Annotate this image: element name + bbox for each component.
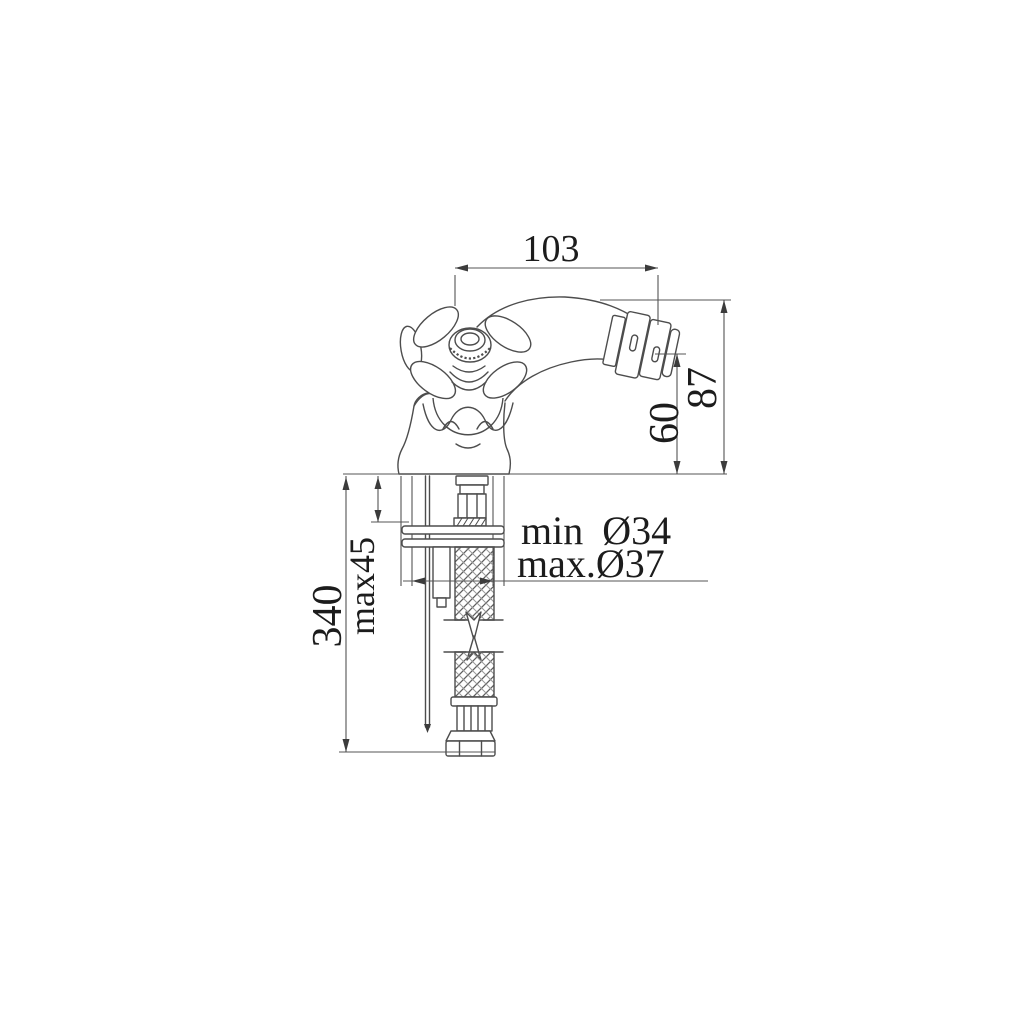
tailpiece-neck: [460, 485, 484, 494]
dim-max45-label: max45: [342, 537, 382, 635]
hose-upper-section: [455, 547, 494, 620]
dim-60-arrow-bottom: [674, 461, 681, 474]
mounting-plate-upper: [402, 526, 504, 534]
tailpiece-hex: [458, 494, 486, 518]
supply-hose: [444, 547, 503, 756]
handle-collar-arc-top: [453, 366, 485, 372]
hose-nut-chamfer: [446, 731, 495, 741]
dim-max45-arrow-top: [375, 477, 382, 489]
dimension-max45: max45: [342, 476, 409, 635]
dim-103-arrow-right: [645, 265, 658, 272]
handle-collar-arc-low: [452, 382, 486, 390]
dim-87-arrow-bottom: [721, 461, 728, 474]
tailpiece-collar: [456, 476, 488, 485]
fixing-stud-tip: [437, 598, 446, 607]
dim-340-arrow-bottom: [343, 739, 350, 752]
cross-handle: [397, 300, 537, 406]
hole-dim-arrow-left: [412, 578, 425, 585]
hole-max-label: max.Ø37: [517, 541, 665, 586]
dim-340-arrow-top: [343, 477, 350, 490]
dim-103-arrow-left: [455, 265, 468, 272]
skirt-inner-arc: [456, 444, 480, 448]
handle-collar-arc-mid: [450, 372, 488, 382]
mounting-plate-lower: [402, 539, 504, 547]
technical-drawing: 103 87 60 340 max45 min Ø34 max.Ø37: [0, 0, 1024, 1024]
hose-ferrule: [451, 697, 497, 706]
drawing-canvas: 103 87 60 340 max45 min Ø34 max.Ø37: [0, 0, 1024, 1024]
hose-lower-section: [455, 652, 494, 697]
spray-nozzle: [601, 308, 682, 385]
dimension-103: 103: [455, 228, 658, 325]
fixing-stud: [433, 547, 450, 598]
hose-nut-body: [446, 741, 495, 756]
handle-lobe-se: [477, 355, 533, 405]
threaded-rod: [426, 476, 430, 727]
dim-103-label: 103: [523, 228, 580, 270]
faucet-body: [398, 393, 513, 474]
dim-87-arrow-top: [721, 300, 728, 313]
hose-rib-section: [457, 706, 492, 731]
rod-end-tip: [424, 724, 431, 733]
dim-60-label: 60: [642, 402, 688, 444]
dim-max45-arrow-bottom: [375, 510, 382, 522]
